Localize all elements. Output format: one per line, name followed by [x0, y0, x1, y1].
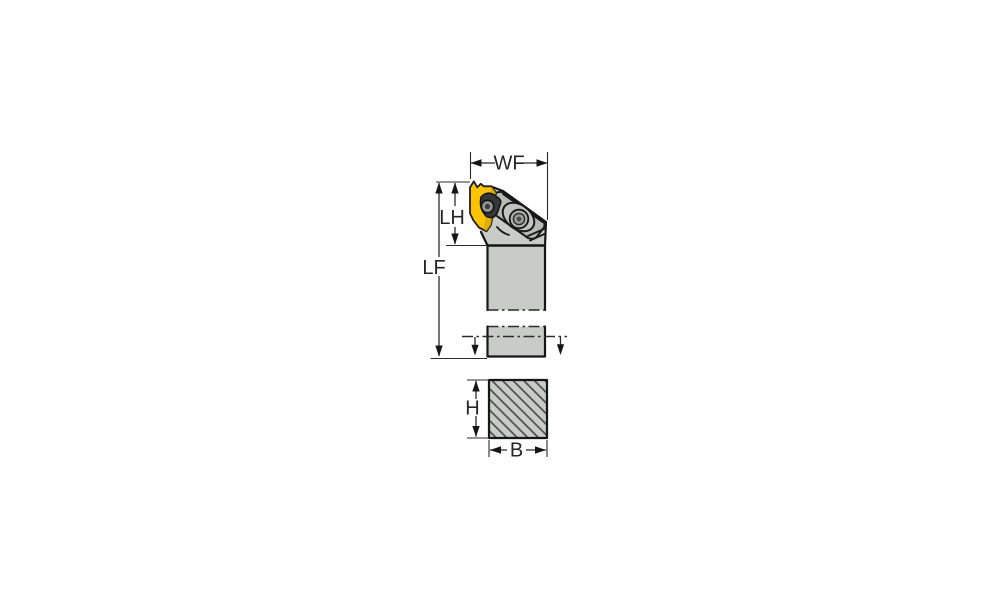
shank-cross-section — [489, 380, 547, 438]
cross-section-hatch — [489, 380, 547, 438]
tool-head-outline-left — [481, 232, 488, 310]
lh-label: LH — [439, 207, 465, 229]
shank-lower-fill — [488, 327, 546, 357]
b-dimension: B — [489, 440, 547, 462]
technical-drawing: WF LH LF H — [0, 0, 1000, 611]
diagram-canvas: WF LH LF H — [0, 0, 1000, 611]
h-dimension: H — [465, 380, 489, 438]
h-label: H — [465, 398, 479, 420]
shank-lower-piece — [462, 327, 567, 357]
lf-label: LF — [422, 257, 445, 279]
b-label: B — [510, 440, 523, 462]
wf-label: WF — [493, 153, 524, 175]
insert-screw — [481, 200, 493, 212]
clamp-screw — [510, 210, 529, 229]
